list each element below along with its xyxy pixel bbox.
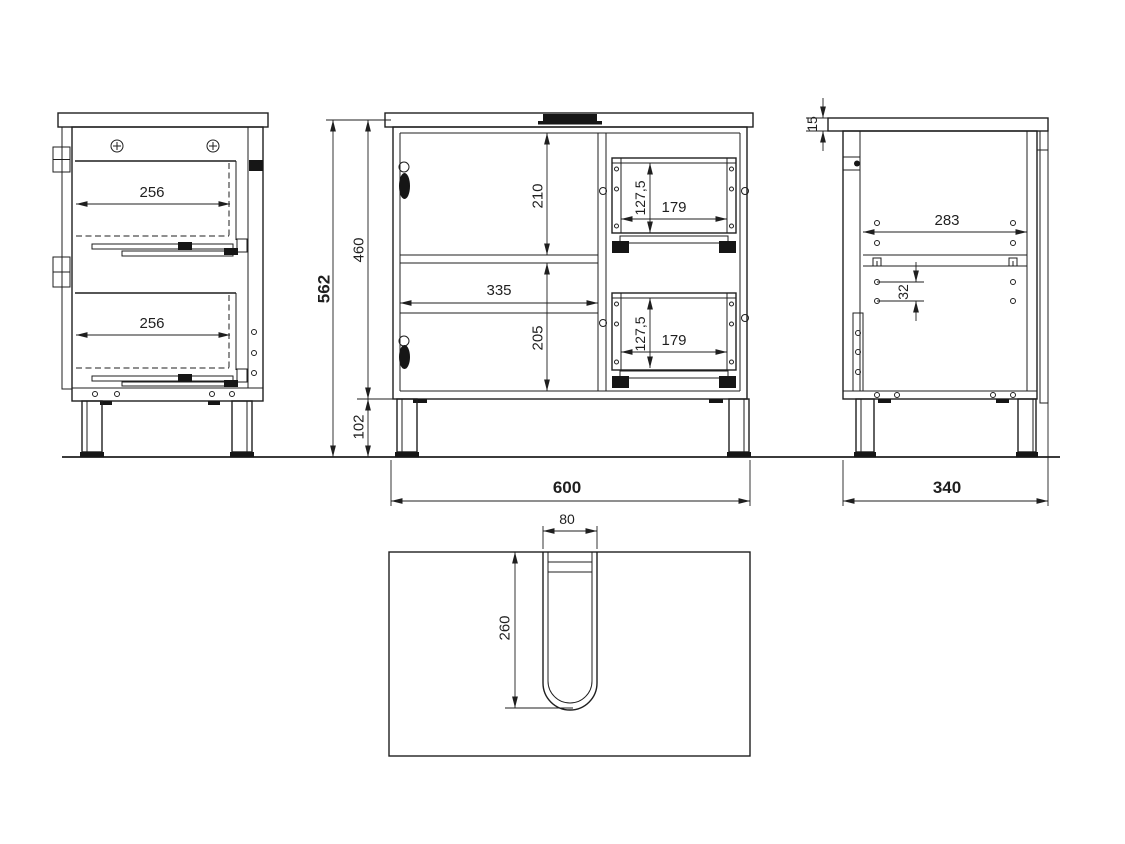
drawer-slide	[92, 376, 233, 381]
dim-label: 205	[530, 325, 547, 350]
leg	[395, 399, 419, 458]
screw-icon	[111, 140, 123, 152]
door-hinge-upper	[399, 162, 410, 199]
dim-label: 127,5	[632, 180, 648, 215]
dim-label: 335	[486, 282, 511, 299]
dim-label: 256	[139, 315, 164, 332]
foot-glide	[208, 401, 220, 405]
drawer-slide	[620, 371, 728, 378]
sink-cutout	[543, 552, 597, 710]
fitting-hole	[600, 320, 607, 327]
dim-upper-drawer-height: 127,5	[632, 163, 650, 233]
dim-lower-compartment-height: 205	[530, 263, 548, 391]
dim-label: 102	[351, 414, 368, 439]
dim-label: 127,5	[632, 316, 648, 351]
left-side-view: 256 256	[53, 113, 268, 458]
door-hinge-lower	[399, 336, 410, 369]
hinge-mount-strip	[853, 313, 863, 391]
sink-cutout-edge	[543, 114, 597, 121]
dim-label: 283	[934, 212, 959, 229]
drawer-slide	[92, 244, 233, 249]
dim-label: 210	[530, 183, 547, 208]
fitting-hole	[600, 188, 607, 195]
door-edge	[1040, 131, 1048, 403]
upper-drawer-side	[75, 161, 247, 256]
screw-icon	[207, 140, 219, 152]
leg	[854, 399, 876, 458]
dim-drawer-depth-bottom: 256	[76, 315, 230, 335]
back-edge-holes	[252, 330, 257, 376]
technical-drawing-page: 256 256	[0, 0, 1125, 844]
dim-label: 256	[139, 184, 164, 201]
bottom-band-holes	[875, 393, 1016, 398]
dim-label: 260	[497, 615, 514, 640]
foot-glide	[996, 399, 1009, 403]
dim-drawer-depth-top: 256	[76, 184, 230, 204]
right-side-view: 15 283 32	[804, 98, 1048, 506]
dim-total-height: 562	[315, 120, 334, 457]
dim-label: 179	[661, 199, 686, 216]
sink-cutout-inner	[548, 552, 592, 703]
dim-label: 562	[315, 275, 334, 303]
dim-label: 179	[661, 332, 686, 349]
leg	[1016, 399, 1038, 458]
drawer-slide	[122, 382, 233, 386]
door-hinge-tab	[1037, 131, 1048, 150]
dim-label: 600	[553, 478, 581, 497]
top-panel-plan	[389, 552, 750, 756]
dim-label: 340	[933, 478, 961, 497]
front-view: 210 205 335 127,5 1	[385, 113, 753, 506]
connector-block	[249, 160, 263, 171]
top-panel	[58, 113, 268, 127]
drawer-slide	[620, 236, 728, 243]
dim-label: 15	[804, 116, 820, 132]
carcass-side	[843, 131, 1037, 399]
drawer-slide	[122, 251, 233, 256]
leg	[230, 401, 254, 458]
foot-glide	[878, 399, 891, 403]
height-dimensions: 562 460 102	[315, 120, 397, 457]
dim-label: 460	[351, 237, 368, 262]
sink-cutout-edge	[538, 121, 602, 125]
top-panel	[828, 118, 1048, 131]
dim-compartment-width: 335	[400, 282, 598, 303]
dim-cutout-depth: 260	[497, 552, 574, 708]
leg	[80, 401, 104, 458]
dim-pin-hole-span: 283	[863, 212, 1027, 232]
lower-drawer-side	[75, 293, 247, 387]
dim-overall-width: 600	[391, 460, 750, 506]
dim-upper-compartment-height: 210	[530, 133, 548, 255]
leg	[727, 399, 751, 458]
dim-cutout-width: 80	[543, 511, 597, 549]
dim-top-panel-thickness: 15	[804, 98, 828, 151]
cabinet-technical-drawing: 256 256	[0, 0, 1125, 844]
dim-carcass-height: 460	[351, 120, 369, 399]
foot-glide	[709, 399, 723, 403]
top-view: 80 260	[389, 511, 750, 756]
carcass-side	[72, 127, 263, 401]
dim-label: 32	[895, 284, 911, 300]
dim-leg-height: 102	[351, 399, 369, 457]
bottom-band-holes	[93, 392, 235, 397]
dim-pin-hole-pitch: 32	[877, 262, 924, 321]
dim-label: 80	[559, 511, 575, 527]
dim-lower-drawer-height: 127,5	[632, 298, 650, 368]
